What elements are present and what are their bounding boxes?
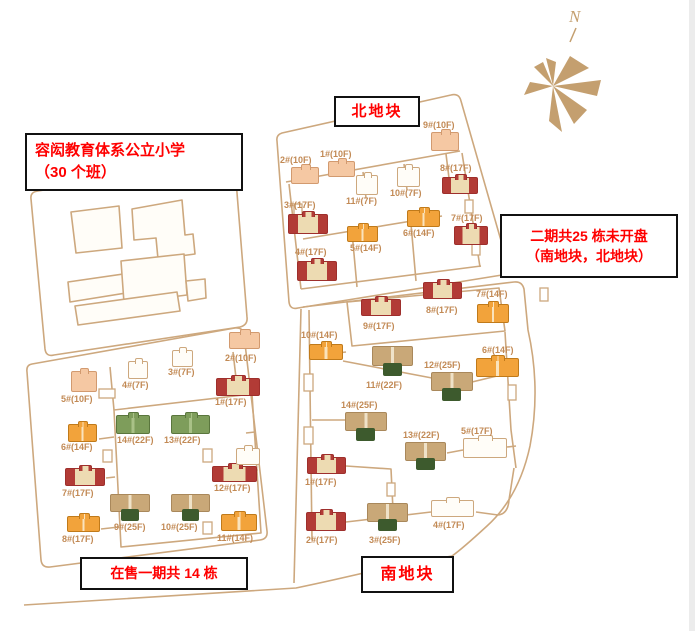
building-label-south-6#(14F): 6#(14F) xyxy=(482,345,514,355)
building-label-south-13#(22F): 13#(22F) xyxy=(403,430,440,440)
building-north-11#(7F) xyxy=(356,175,378,195)
building-phase1-10#(25F) xyxy=(171,494,210,521)
building-label-phase1-4#(7F): 4#(7F) xyxy=(122,380,149,390)
building-south-12#(25F) xyxy=(431,372,473,401)
building-south-3#(25F) xyxy=(367,503,408,531)
building-north-10#(7F) xyxy=(397,167,420,187)
building-label-south-2#(17F): 2#(17F) xyxy=(306,535,338,545)
school-buildings xyxy=(68,200,206,325)
building-label-phase1-10#(25F): 10#(25F) xyxy=(161,522,198,532)
building-label-south-5#(17F): 5#(17F) xyxy=(461,426,493,436)
building-phase1-8#(17F) xyxy=(67,516,100,532)
building-south-1#(17F) xyxy=(307,457,346,474)
building-south-9#(17F) xyxy=(361,299,401,316)
building-label-south-4#(17F): 4#(17F) xyxy=(433,520,465,530)
building-label-south-11#(22F): 11#(22F) xyxy=(366,380,402,390)
building-phase1-2#(10F) xyxy=(229,332,260,349)
school-annotation-line1: 容闳教育体系公立小学 xyxy=(35,140,233,162)
south-plot-label: 南地块 xyxy=(380,563,434,586)
compass-icon: N xyxy=(524,7,601,132)
building-north-8#(17F) xyxy=(442,177,478,194)
building-south-5#(17F) xyxy=(463,438,507,458)
building-north-4#(17F) xyxy=(297,261,337,281)
north-plot-label-box: 北地块 xyxy=(334,96,420,127)
building-phase1-6#(14F) xyxy=(68,424,97,442)
building-label-phase1-6#(14F): 6#(14F) xyxy=(61,442,93,452)
building-label-north-6#(14F): 6#(14F) xyxy=(403,228,435,238)
building-label-north-8#(17F): 8#(17F) xyxy=(440,163,472,173)
building-label-south-10#(14F): 10#(14F) xyxy=(301,330,338,340)
building-south-2#(17F) xyxy=(306,512,346,531)
building-north-3#(17F) xyxy=(288,214,328,234)
south-plot-label-box: 南地块 xyxy=(361,556,454,593)
building-phase1-9#(25F) xyxy=(110,494,150,521)
building-phase1-1#(17F) xyxy=(216,378,260,396)
building-label-phase1-3#(7F): 3#(7F) xyxy=(168,367,195,377)
building-phase1-annex xyxy=(236,448,260,465)
building-label-north-2#(10F): 2#(10F) xyxy=(280,155,312,165)
north-plot-label: 北地块 xyxy=(351,101,402,123)
building-label-south-7#(14F): 7#(14F) xyxy=(476,289,508,299)
building-south-10#(14F) xyxy=(309,344,343,360)
building-label-south-3#(25F): 3#(25F) xyxy=(369,535,401,545)
building-north-2#(10F) xyxy=(291,167,319,184)
school-annotation-box: 容闳教育体系公立小学 （30 个班） xyxy=(25,133,243,191)
building-south-11#(22F) xyxy=(372,346,413,376)
building-phase1-14#(22F) xyxy=(116,415,150,434)
building-label-north-11#(7F): 11#(7F) xyxy=(346,196,377,206)
building-phase1-13#(22F) xyxy=(171,415,210,434)
phase1-status-label: 在售一期共 14 栋 xyxy=(110,563,217,583)
building-south-8#(17F) xyxy=(423,282,462,299)
building-phase1-5#(10F) xyxy=(71,371,97,392)
building-label-south-14#(25F): 14#(25F) xyxy=(341,400,378,410)
building-phase1-3#(7F) xyxy=(172,350,193,367)
building-phase1-12#(17F) xyxy=(212,466,257,482)
building-label-north-10#(7F): 10#(7F) xyxy=(390,188,422,198)
phase1-status-box: 在售一期共 14 栋 xyxy=(80,557,248,590)
site-plan: N 1#(10F)2#(10F)3#(17F)4#(17F)5#(14F)6#(… xyxy=(0,0,695,631)
phase2-status-line1: 二期共25 栋未开盘 xyxy=(530,226,647,246)
building-label-north-1#(10F): 1#(10F) xyxy=(320,149,352,159)
building-phase1-4#(7F) xyxy=(128,361,148,379)
building-label-north-4#(17F): 4#(17F) xyxy=(295,247,327,257)
building-label-south-9#(17F): 9#(17F) xyxy=(363,321,395,331)
building-label-phase1-7#(17F): 7#(17F) xyxy=(62,488,94,498)
building-label-phase1-9#(25F): 9#(25F) xyxy=(114,522,146,532)
building-north-5#(14F) xyxy=(347,226,378,242)
building-south-13#(22F) xyxy=(405,442,446,470)
building-label-phase1-1#(17F): 1#(17F) xyxy=(215,397,247,407)
building-north-7#(17F) xyxy=(454,226,488,245)
school-annotation-line2: （30 个班） xyxy=(35,162,233,184)
phase2-status-line2: （南地块，北地块） xyxy=(526,246,652,266)
building-label-phase1-13#(22F): 13#(22F) xyxy=(164,435,201,445)
compass-n-label: N xyxy=(568,7,582,26)
building-label-phase1-14#(22F): 14#(22F) xyxy=(117,435,154,445)
building-north-6#(14F) xyxy=(407,210,440,227)
site-plan-drawing: N xyxy=(0,0,695,631)
building-label-south-1#(17F): 1#(17F) xyxy=(305,477,337,487)
phase2-status-box: 二期共25 栋未开盘 （南地块，北地块） xyxy=(500,214,678,278)
building-label-north-9#(10F): 9#(10F) xyxy=(423,120,455,130)
building-label-phase1-2#(10F): 2#(10F) xyxy=(225,353,257,363)
building-north-1#(10F) xyxy=(328,161,355,177)
building-label-phase1-5#(10F): 5#(10F) xyxy=(61,394,93,404)
building-south-14#(25F) xyxy=(345,412,387,441)
building-phase1-7#(17F) xyxy=(65,468,105,486)
building-label-north-7#(17F): 7#(17F) xyxy=(451,213,483,223)
building-phase1-11#(14F) xyxy=(221,514,257,531)
building-label-south-8#(17F): 8#(17F) xyxy=(426,305,458,315)
building-label-phase1-12#(17F): 12#(17F) xyxy=(214,483,251,493)
building-south-4#(17F) xyxy=(431,500,474,517)
building-label-north-3#(17F): 3#(17F) xyxy=(284,200,316,210)
building-label-south-12#(25F): 12#(25F) xyxy=(424,360,461,370)
building-north-9#(10F) xyxy=(431,132,459,151)
building-south-7#(14F) xyxy=(477,304,509,323)
building-south-6#(14F) xyxy=(476,358,519,377)
building-label-north-5#(14F): 5#(14F) xyxy=(350,243,382,253)
building-label-phase1-8#(17F): 8#(17F) xyxy=(62,534,94,544)
building-label-phase1-11#(14F): 11#(14F) xyxy=(217,533,253,543)
